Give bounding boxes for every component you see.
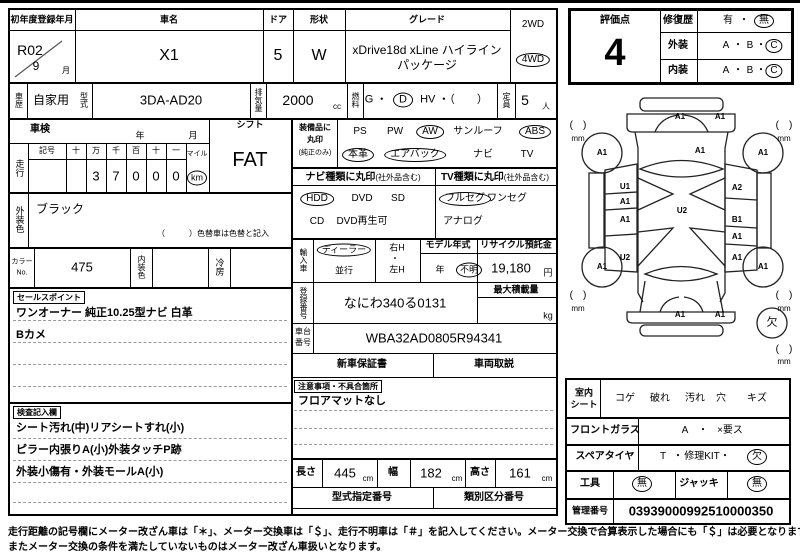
import-dealer-selected: ディーラー: [317, 244, 371, 257]
equipment-label-line3: (純正のみ): [299, 150, 332, 157]
exterior-grade-label: 外装: [668, 41, 688, 51]
registration-number-label: 登録番号: [293, 282, 313, 323]
mm-bracket: ( ): [570, 121, 587, 131]
ruled-line: [13, 364, 287, 365]
damage-code: A2: [732, 184, 742, 192]
sales-point-tag: セールスポイント: [13, 291, 85, 304]
displacement-unit: cc: [333, 103, 341, 111]
color-no-label: カラー: [12, 259, 33, 266]
spare-tire-missing-selected: 欠: [747, 449, 767, 465]
shaken-month-label: 月: [188, 132, 197, 141]
mm-unit: mm: [571, 135, 584, 143]
recycle-deposit-value: 19,180: [491, 262, 531, 275]
door-value: 5: [274, 48, 283, 64]
grade-label: グレード: [409, 16, 445, 25]
ruled-line: [294, 428, 553, 429]
management-number-label: 管理番号: [572, 507, 608, 516]
shaken-label: 車検: [30, 125, 50, 135]
door-label: ドア: [269, 16, 287, 25]
divider-line: [465, 460, 466, 487]
equip-aw-selected: AW: [416, 125, 444, 139]
first-registration-label: 初年度登録年月: [10, 16, 73, 25]
divider-line: [10, 192, 291, 194]
shaken-year-label: 年: [135, 132, 144, 141]
capacity-label: 定員: [497, 82, 515, 118]
sales-point-line1: ワンオーナー 純正10.25型ナビ 白革: [16, 308, 193, 319]
damage-code: A1: [732, 233, 742, 241]
evaluation-score-label: 評価点: [600, 16, 630, 26]
missing-part-mark: 欠: [767, 318, 778, 329]
divider-line: [10, 402, 291, 404]
model-code-value: 3DA-AD20: [140, 94, 202, 107]
dot-separator: ・: [739, 16, 749, 26]
repair-yes-option: 有: [723, 16, 733, 26]
grade-value-line1: xDrive18d xLine ハイライン: [352, 44, 501, 56]
divider-line: [230, 247, 231, 287]
divider-line: [377, 460, 378, 487]
divider-line: [420, 238, 421, 282]
type-designation-label: 型式指定番号: [332, 493, 392, 503]
tv-type-header-sub: (社外品含む): [504, 173, 549, 182]
mileage-col-symbol: 記号: [39, 147, 55, 155]
inspector-notes-tag: 検査記入欄: [13, 406, 61, 419]
divider-line: [263, 10, 264, 82]
exterior-grade-a: A: [723, 41, 730, 51]
color-change-note: （ ）色替車は色替と記入: [157, 230, 269, 238]
mileage-km-selected: km: [187, 171, 207, 186]
width-value: 182: [420, 467, 442, 480]
ruled-line: [13, 386, 287, 387]
footer-note-line1: 走行距離の記号欄にメーター改ざん車は「＊」、メーター交換車は「＄」、走行不明車は…: [8, 528, 800, 538]
mm-bracket: ( ): [776, 345, 793, 355]
mileage-digit: 3: [92, 170, 99, 183]
handle-left: 左H: [389, 266, 405, 275]
divider-line: [293, 10, 294, 82]
width-unit: cm: [452, 475, 463, 483]
equipment-label-line1: 装備品に: [299, 124, 331, 132]
interior-grade-c-selected: C: [765, 64, 782, 78]
exterior-color-label: 外装色: [10, 192, 28, 247]
model-year-unit: 年: [435, 266, 444, 275]
divider-line: [510, 10, 511, 82]
divider-line: [291, 185, 556, 186]
inspector-note-line3: 外装小傷有・外装モールA(小): [16, 467, 163, 478]
navi-type-header-sub: (社外品含む): [375, 173, 420, 182]
equip-leather-selected: 本革: [342, 148, 374, 162]
chassis-number-value: WBA32AD0805R94341: [366, 332, 503, 345]
divider-line: [435, 167, 436, 238]
divider-line: [291, 282, 556, 283]
mm-unit: mm: [777, 305, 790, 313]
equip-airbag-selected: エアバック: [384, 148, 446, 162]
model-year-unknown-selected: 不明: [456, 263, 482, 278]
shape-value: W: [311, 48, 326, 64]
seat-hole-option: 穴: [716, 394, 726, 404]
length-value: 445: [334, 467, 356, 480]
class-number-label: 類別区分番号: [464, 493, 524, 503]
tools-none-selected: 無: [632, 476, 652, 492]
fuel-option-rest: HV ・（ ）: [420, 95, 488, 106]
damage-code: U2: [677, 207, 687, 215]
navi-type-header: ナビ種類に丸印: [305, 172, 375, 183]
mileage-digit: 0: [132, 170, 139, 183]
mm-unit: mm: [777, 358, 790, 366]
divider-line: [660, 59, 791, 60]
condition-table: 室内 シート コゲ 破れ 汚れ 穴 キズ フロントガラス A ・ ×要ス スペア…: [565, 378, 791, 525]
mileage-col-1k: 千: [112, 147, 120, 155]
divider-line: [28, 159, 186, 160]
model-code-label: 型式: [75, 82, 92, 118]
spare-tire-label: スペアタイヤ: [576, 452, 635, 462]
max-load-unit: kg: [543, 312, 553, 321]
divider-line: [477, 297, 556, 298]
windshield-replace-option: ×要ス: [717, 426, 743, 436]
height-label: 高さ: [470, 468, 490, 478]
divider-line: [126, 143, 127, 192]
mm-bracket: ( ): [776, 291, 793, 301]
height-value: 161: [509, 467, 531, 480]
divider-line: [515, 82, 516, 118]
divider-line: [337, 118, 338, 167]
divider-line: [266, 82, 267, 118]
divider-line: [75, 10, 76, 82]
divider-line: [638, 446, 639, 470]
divider-line: [152, 247, 153, 287]
repair-no-selected: 無: [754, 14, 774, 28]
shape-label: 形状: [310, 16, 328, 25]
fuel-label: 燃料: [347, 82, 363, 118]
interior-seat-label1: 室内: [575, 389, 593, 398]
equip-navi: ナビ: [473, 150, 493, 160]
equip-pw: PW: [387, 127, 403, 137]
damage-code: U2: [620, 254, 630, 262]
capacity-value: 5: [521, 93, 529, 107]
month-suffix: 月: [62, 67, 70, 75]
ruled-line: [294, 410, 553, 411]
equipment-label-line2: 丸印: [307, 136, 323, 144]
equip-sunroof: サンルーフ: [453, 127, 502, 137]
divider-line: [660, 11, 661, 82]
car-name-value: X1: [159, 48, 179, 64]
interior-grade-b: B: [747, 66, 754, 76]
equip-tv: TV: [521, 150, 534, 160]
registration-number-value: なにわ340る0131: [344, 297, 447, 310]
caution-line1: フロアマットなし: [298, 396, 386, 407]
owner-manual-label: 車両取説: [474, 360, 514, 370]
divider-line: [291, 377, 556, 378]
mileage-label: 走行: [10, 143, 28, 192]
length-unit: cm: [363, 475, 374, 483]
divider-line: [477, 238, 478, 323]
jack-none-selected: 無: [747, 476, 767, 492]
seat-scratch-option: キズ: [747, 394, 767, 404]
divider-line: [567, 470, 789, 472]
divider-line: [433, 487, 434, 508]
divider-line: [291, 508, 556, 509]
footer-note-line2: またメーター交換の条件を満たしていないものはメーター改ざん車扱いとなります。: [8, 543, 386, 553]
divider-line: [10, 287, 291, 289]
divider-line: [410, 460, 411, 487]
car-outline-drawing: [565, 88, 793, 375]
handle-right: 右H: [389, 244, 405, 253]
divider-line: [313, 238, 314, 323]
divider-line: [495, 460, 496, 487]
divider-line: [28, 192, 29, 247]
interior-seat-label2: シート: [570, 401, 597, 410]
divider-line: [613, 500, 614, 523]
ruled-line: [13, 438, 287, 439]
width-label: 幅: [388, 468, 398, 478]
mm-bracket: ( ): [776, 121, 793, 131]
height-unit: cm: [542, 475, 553, 483]
ruled-line: [13, 482, 287, 483]
max-load-label: 最大積載量: [493, 286, 538, 295]
divider-line: [27, 82, 28, 118]
divider-line: [291, 323, 556, 324]
damage-code: A1: [695, 147, 705, 155]
damage-diagram: A1 A1 A1 A1 A1 U1 A2 A1 U2 A1 B1 A1 U2 A…: [565, 88, 793, 375]
divider-line: [10, 30, 510, 31]
spare-tire-kit-option: 修理KIT: [684, 452, 720, 462]
damage-code: A1: [715, 113, 725, 121]
damage-code: B1: [732, 216, 742, 224]
mileage-col-100k: 十: [72, 147, 80, 155]
divider-line: [313, 323, 314, 353]
divider-line: [567, 444, 789, 446]
tools-label: 工具: [580, 479, 600, 489]
divider-line: [92, 82, 93, 118]
divider-line: [10, 143, 209, 144]
windshield-label: フロントガラス: [570, 426, 640, 436]
tv-type-header: TV種類に丸印: [441, 172, 504, 183]
damage-code: A1: [597, 149, 607, 157]
shift-label: シフト: [236, 121, 263, 130]
tv-fullseg-selected: フルセグ: [439, 192, 491, 206]
mileage-digit: 7: [112, 170, 119, 183]
exterior-grade-b: B: [747, 41, 754, 51]
jack-label: ジャッキ: [679, 479, 719, 489]
drive-2wd-option: 2WD: [522, 20, 544, 30]
drive-4wd-selected: 4WD: [516, 53, 550, 67]
interior-grade-label: 内装: [668, 66, 688, 76]
mileage-digit: 0: [152, 170, 159, 183]
dot-separator: ・: [733, 66, 743, 76]
damage-code: A1: [597, 263, 607, 271]
import-parallel: 並行: [335, 267, 353, 276]
mileage-mile-label: マイル: [187, 151, 208, 158]
damage-code: A1: [715, 311, 725, 319]
divider-line: [86, 143, 87, 192]
divider-line: [567, 498, 789, 500]
equip-abs-selected: ABS: [519, 125, 551, 139]
divider-line: [209, 118, 210, 192]
interior-color-label: 内装色: [130, 247, 152, 287]
grade-value-line2: パッケージ: [397, 59, 457, 71]
sales-point-line2: Bカメ: [16, 330, 46, 341]
ruled-line: [13, 342, 287, 343]
caution-tag: 注意事項・不具合箇所: [294, 380, 382, 393]
damage-code: A1: [620, 198, 630, 206]
navi-cd: CD: [310, 217, 324, 227]
tv-oneseg: ワンセグ: [487, 194, 527, 204]
model-year-label: モデル年式: [425, 241, 470, 250]
divider-line: [66, 143, 67, 192]
seat-burn-option: コゲ: [615, 394, 635, 404]
evaluation-box: 評価点 4 修復歴 有 ・ 無 外装 A ・ B ・ C 内装 A ・ B ・ …: [568, 8, 794, 85]
divider-line: [106, 143, 107, 192]
damage-code: A1: [732, 254, 742, 262]
divider-line: [375, 238, 376, 282]
seat-dirt-option: 汚れ: [685, 394, 705, 404]
air-conditioner-label: 冷房: [208, 247, 230, 287]
ruled-line: [13, 320, 287, 321]
seat-tear-option: 破れ: [650, 394, 670, 404]
divider-line: [322, 460, 323, 487]
shift-value: FAT: [232, 150, 267, 170]
spare-tire-t-option: T: [660, 452, 666, 462]
divider-line: [420, 253, 556, 254]
history-value: 自家用: [33, 94, 69, 106]
navi-dvd: DVD: [351, 194, 372, 204]
divider-line: [291, 458, 556, 460]
divider-line: [613, 472, 614, 498]
divider-line: [697, 11, 698, 82]
mm-unit: mm: [571, 305, 584, 313]
damage-code: A1: [758, 149, 768, 157]
history-label: 車歴: [10, 82, 27, 118]
navi-hdd-selected: HDD: [300, 192, 334, 206]
top-rule: [0, 0, 800, 3]
divider-line: [660, 32, 791, 33]
mm-unit: mm: [777, 135, 790, 143]
mileage-col-10: 十: [152, 147, 160, 155]
recycle-deposit-label: リサイクル預託金: [480, 241, 552, 250]
divider-line: [433, 353, 434, 377]
exterior-color-value: ブラック: [36, 203, 84, 215]
handle-dot: ・: [390, 255, 399, 264]
navi-sd: SD: [391, 194, 405, 204]
evaluation-score-value: 4: [604, 34, 625, 72]
dot-separator: ・: [673, 452, 683, 462]
windshield-a-option: A: [682, 426, 689, 436]
repair-history-label: 修復歴: [663, 16, 693, 26]
import-label: 輸入車: [293, 238, 313, 282]
divider-line: [291, 353, 556, 354]
exterior-grade-c-selected: C: [765, 39, 782, 53]
mileage-col-10k: 万: [92, 147, 100, 155]
damage-code: U1: [620, 183, 630, 191]
chassis-number-label1: 車台: [295, 328, 311, 336]
damage-code: A1: [675, 311, 685, 319]
color-no-value: 475: [71, 261, 93, 274]
divider-line: [600, 380, 601, 417]
equip-ps: PS: [353, 127, 366, 137]
chassis-number-label2: 番号: [295, 339, 311, 347]
damage-code: A1: [758, 263, 768, 271]
divider-line: [675, 472, 676, 498]
displacement-label: 排気量: [250, 82, 266, 118]
displacement-value: 2000: [282, 93, 313, 107]
divider-line: [28, 143, 29, 192]
mileage-digit: 0: [172, 170, 179, 183]
divider-line: [34, 247, 35, 287]
divider-line: [567, 417, 789, 419]
first-registration-month: 9: [33, 60, 40, 72]
tv-analog: アナログ: [443, 217, 483, 227]
ruled-line: [13, 502, 287, 503]
capacity-unit: 人: [542, 103, 550, 111]
inspector-note-line2: ピラー内張りA(小)外装タッチP跡: [16, 445, 182, 456]
car-name-label: 車名: [160, 16, 178, 25]
fuel-option-d-selected: D: [393, 93, 413, 108]
auction-sheet: 初年度登録年月 車名 ドア 形状 グレード R02 9 月 X1 5 W xDr…: [0, 0, 800, 557]
inspector-note-line1: シート汚れ(中)リアシートすれ(小): [16, 423, 184, 434]
main-table: 初年度登録年月 車名 ドア 形状 グレード R02 9 月 X1 5 W xDr…: [8, 8, 558, 516]
length-label: 長さ: [296, 468, 316, 478]
mm-bracket: ( ): [570, 291, 587, 301]
divider-line: [345, 10, 346, 82]
interior-grade-a: A: [723, 66, 730, 76]
dot-separator: ・: [698, 426, 708, 436]
divider-line: [146, 143, 147, 192]
new-car-warranty-label: 新車保証書: [337, 360, 387, 370]
mileage-col-1: 一: [172, 147, 180, 155]
color-no-label2: No.: [17, 270, 28, 277]
mileage-col-100: 百: [132, 147, 140, 155]
damage-code: A1: [620, 216, 630, 224]
divider-line: [291, 487, 556, 488]
navi-dvd-play: DVD再生可: [336, 217, 387, 227]
fuel-option-g: G ・: [365, 95, 388, 106]
divider-line: [10, 118, 556, 120]
divider-line: [166, 143, 167, 192]
management-number-value: 03939000992510000350: [629, 505, 774, 518]
divider-line: [727, 472, 728, 498]
ruled-line: [13, 460, 287, 461]
recycle-deposit-unit: 円: [543, 269, 552, 278]
dot-separator: ・: [733, 41, 743, 51]
dot-separator: ・: [720, 452, 730, 462]
damage-code: A1: [675, 113, 685, 121]
ruled-line: [294, 444, 553, 445]
divider-line: [638, 419, 639, 444]
